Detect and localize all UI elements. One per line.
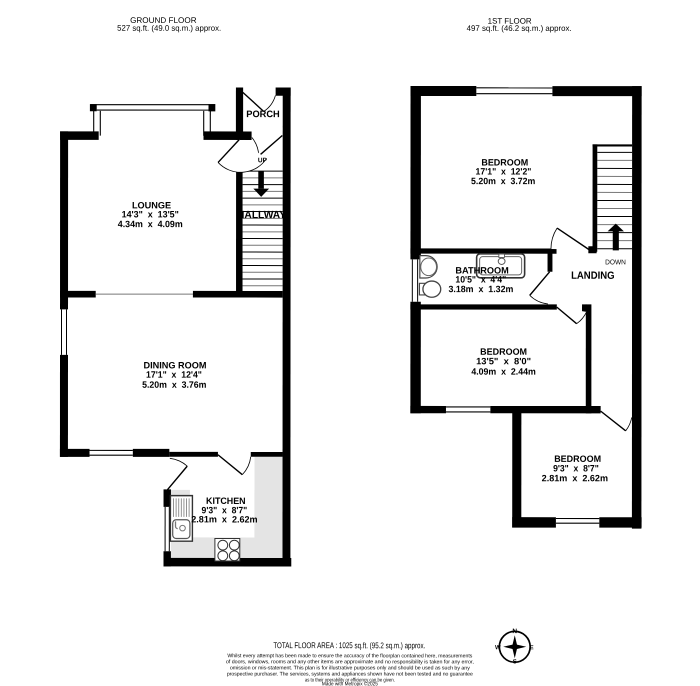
svg-text:9'3" x 8'7": 9'3" x 8'7" (553, 463, 599, 473)
svg-text:5.20m x 3.72m: 5.20m x 3.72m (471, 176, 535, 186)
svg-text:17'1" x 12'4": 17'1" x 12'4" (146, 370, 202, 380)
svg-text:17'1" x 12'2": 17'1" x 12'2" (476, 166, 532, 176)
svg-text:S: S (513, 659, 517, 665)
svg-text:W: W (495, 645, 501, 651)
svg-text:Made with Metropix ©2025: Made with Metropix ©2025 (322, 680, 378, 686)
svg-text:E: E (530, 645, 534, 651)
svg-text:TOTAL FLOOR AREA : 1025 sq.ft.: TOTAL FLOOR AREA : 1025 sq.ft. (95.2 sq.… (273, 640, 425, 650)
svg-text:PORCH: PORCH (246, 109, 280, 120)
svg-text:527 sq.ft. (49.0 sq.m.) approx: 527 sq.ft. (49.0 sq.m.) approx. (117, 24, 221, 33)
svg-text:DOWN: DOWN (605, 259, 626, 266)
svg-text:2.81m x 2.62m: 2.81m x 2.62m (191, 514, 257, 524)
svg-text:N: N (512, 628, 517, 635)
svg-text:14'3" x 13'5": 14'3" x 13'5" (122, 209, 179, 219)
svg-text:5.20m x 3.76m: 5.20m x 3.76m (142, 380, 206, 390)
svg-text:HALLWAY: HALLWAY (237, 209, 286, 221)
svg-text:13'5" x 8'0": 13'5" x 8'0" (476, 356, 531, 366)
svg-text:4.09m x 2.44m: 4.09m x 2.44m (471, 367, 536, 377)
svg-text:2.81m x 2.62m: 2.81m x 2.62m (542, 473, 608, 483)
svg-text:10'5" x 4'4": 10'5" x 4'4" (455, 274, 506, 284)
svg-text:3.18m x 1.32m: 3.18m x 1.32m (448, 284, 513, 294)
svg-text:4.34m x 4.09m: 4.34m x 4.09m (118, 219, 183, 229)
svg-text:LANDING: LANDING (571, 270, 615, 282)
svg-text:UP: UP (258, 157, 268, 164)
svg-text:497 sq.ft. (46.2 sq.m.) approx: 497 sq.ft. (46.2 sq.m.) approx. (467, 24, 572, 33)
